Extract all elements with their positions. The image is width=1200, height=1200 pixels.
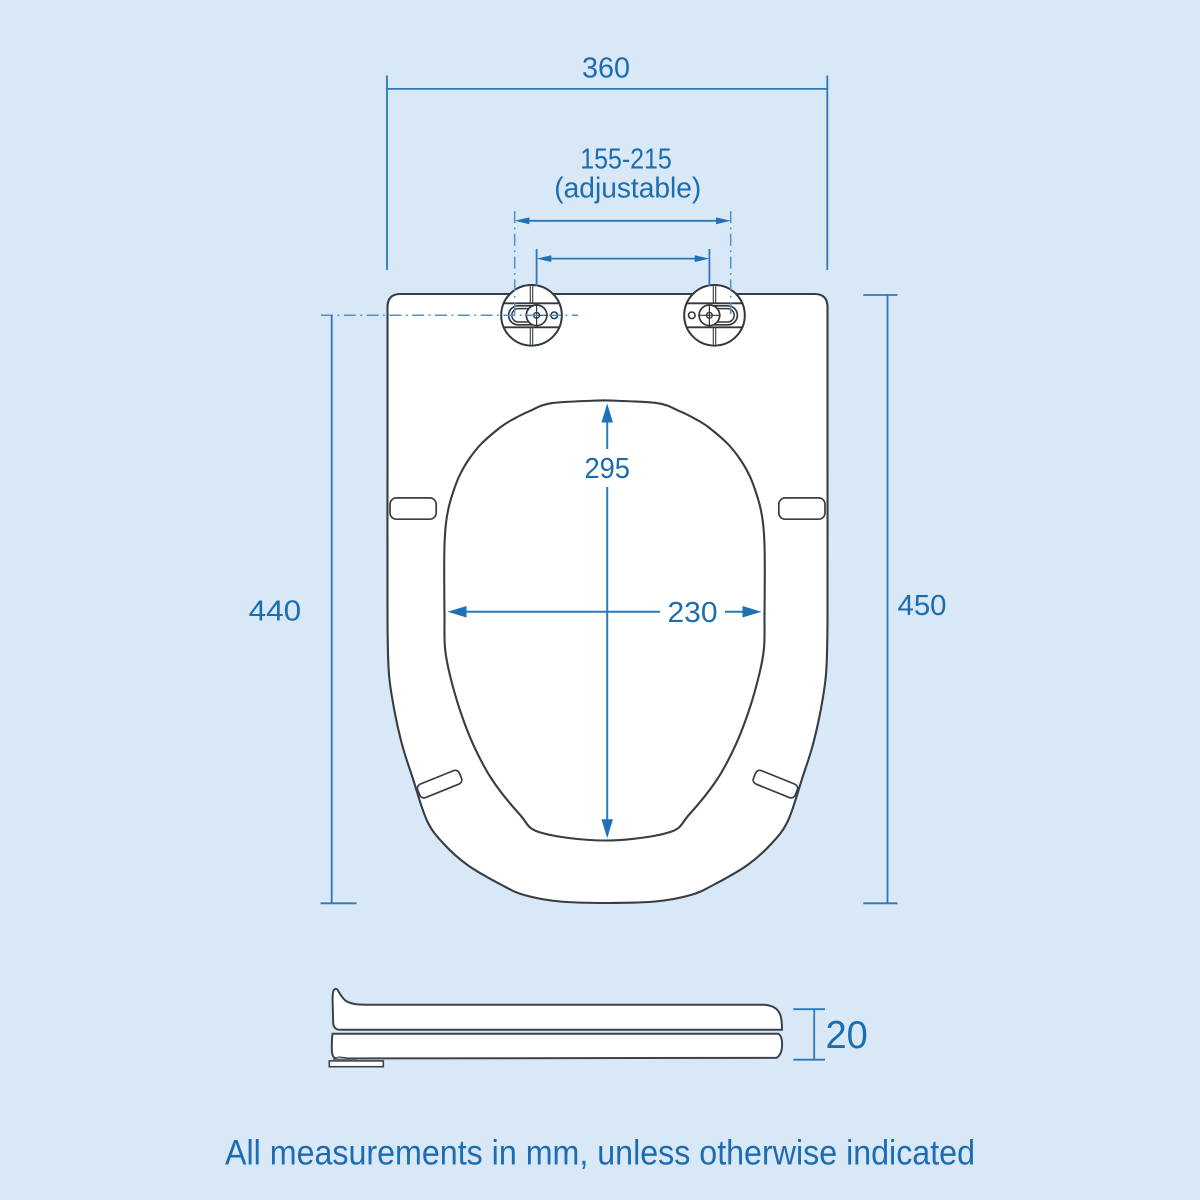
svg-text:All measurements in mm, unless: All measurements in mm, unless otherwise…: [225, 1133, 975, 1172]
svg-text:295: 295: [584, 453, 630, 485]
svg-text:440: 440: [249, 595, 302, 627]
svg-text:(adjustable): (adjustable): [554, 173, 701, 205]
svg-text:155-215: 155-215: [580, 144, 672, 176]
svg-text:450: 450: [898, 590, 947, 622]
svg-text:20: 20: [825, 1014, 867, 1057]
svg-text:230: 230: [668, 597, 718, 629]
svg-text:360: 360: [582, 53, 630, 85]
